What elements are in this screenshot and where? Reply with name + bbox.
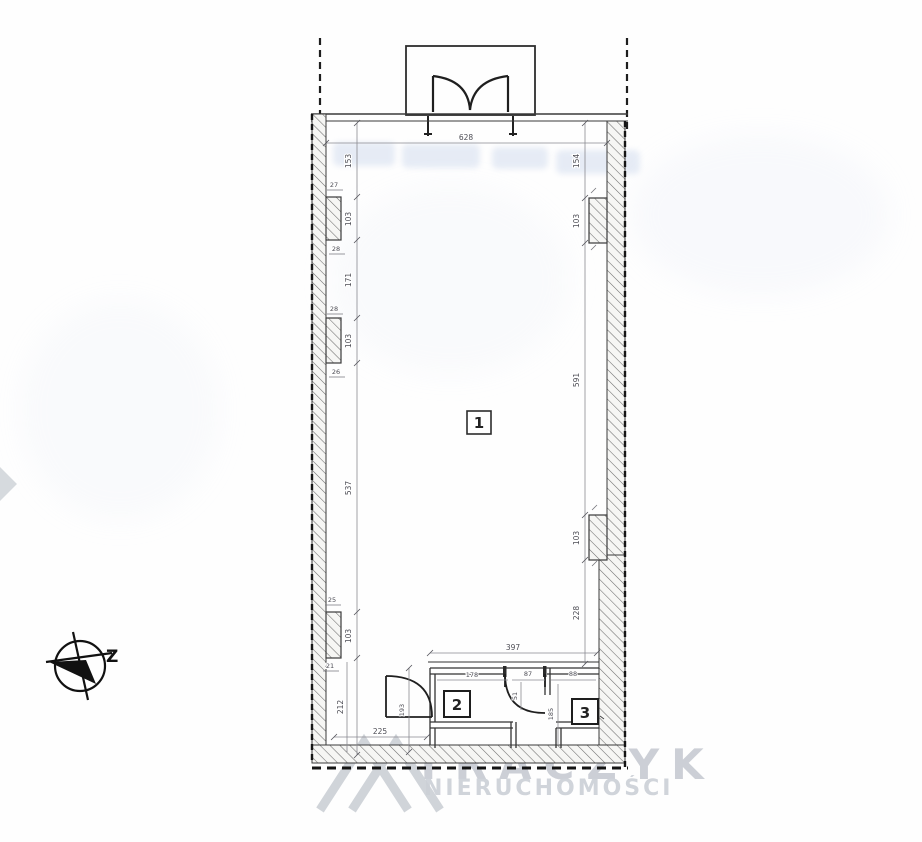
dim-pilaster-4: 26 — [332, 368, 340, 376]
dim-left-2: 103 — [344, 212, 353, 227]
dim-left-5: 537 — [344, 481, 353, 496]
entrance-vestibule — [406, 46, 535, 136]
dim-left-1: 153 — [344, 154, 353, 169]
boundary-guide-lines — [320, 38, 627, 132]
dimension-labels: 628 153 103 171 103 537 103 212 27 28 28… — [326, 133, 581, 736]
dim-pilaster-5: 25 — [328, 596, 336, 604]
room1-label: 1 — [474, 414, 484, 432]
dim-left-4: 103 — [344, 334, 353, 349]
dim-inner-a: 51 — [511, 692, 519, 700]
dim-room3-width: 88 — [569, 670, 577, 678]
dim-left-6: 103 — [344, 629, 353, 644]
dim-mid-door: 87 — [524, 670, 532, 678]
dim-inner-b: 185 — [547, 708, 555, 720]
double-door-swing-icon — [433, 76, 508, 112]
floor-plan-scan: TRACZYK NIERUCHOMOŚCI — [0, 0, 922, 842]
dim-top-width: 628 — [459, 133, 474, 142]
dim-rooms-height: 193 — [398, 704, 406, 716]
dim-right-5: 228 — [572, 606, 581, 621]
dim-pilaster-3: 28 — [330, 305, 338, 313]
room2-label: 2 — [452, 696, 462, 714]
dim-pilaster-1: 27 — [330, 181, 338, 189]
floor-plan-drawing: 628 153 103 171 103 537 103 212 27 28 28… — [0, 0, 922, 842]
dim-right-2: 103 — [572, 214, 581, 229]
dim-room2-width: 178 — [466, 671, 478, 679]
dim-right-4: 103 — [572, 531, 581, 546]
compass-direction-label: Z — [106, 647, 118, 667]
dim-rooms-total: 397 — [506, 643, 521, 652]
dim-left-3: 171 — [344, 273, 353, 288]
dim-right-1: 154 — [572, 154, 581, 169]
dim-pilaster-2: 28 — [332, 245, 340, 253]
dim-left-7: 212 — [336, 700, 345, 715]
walls — [311, 114, 628, 763]
room3-label: 3 — [580, 704, 590, 722]
dim-right-3: 591 — [572, 373, 581, 388]
wall-outer-dashed-edges — [312, 114, 628, 768]
dim-bottom-left: 225 — [373, 727, 388, 736]
compass-rose: Z — [46, 632, 118, 700]
dim-pilaster-6: 21 — [326, 662, 334, 670]
